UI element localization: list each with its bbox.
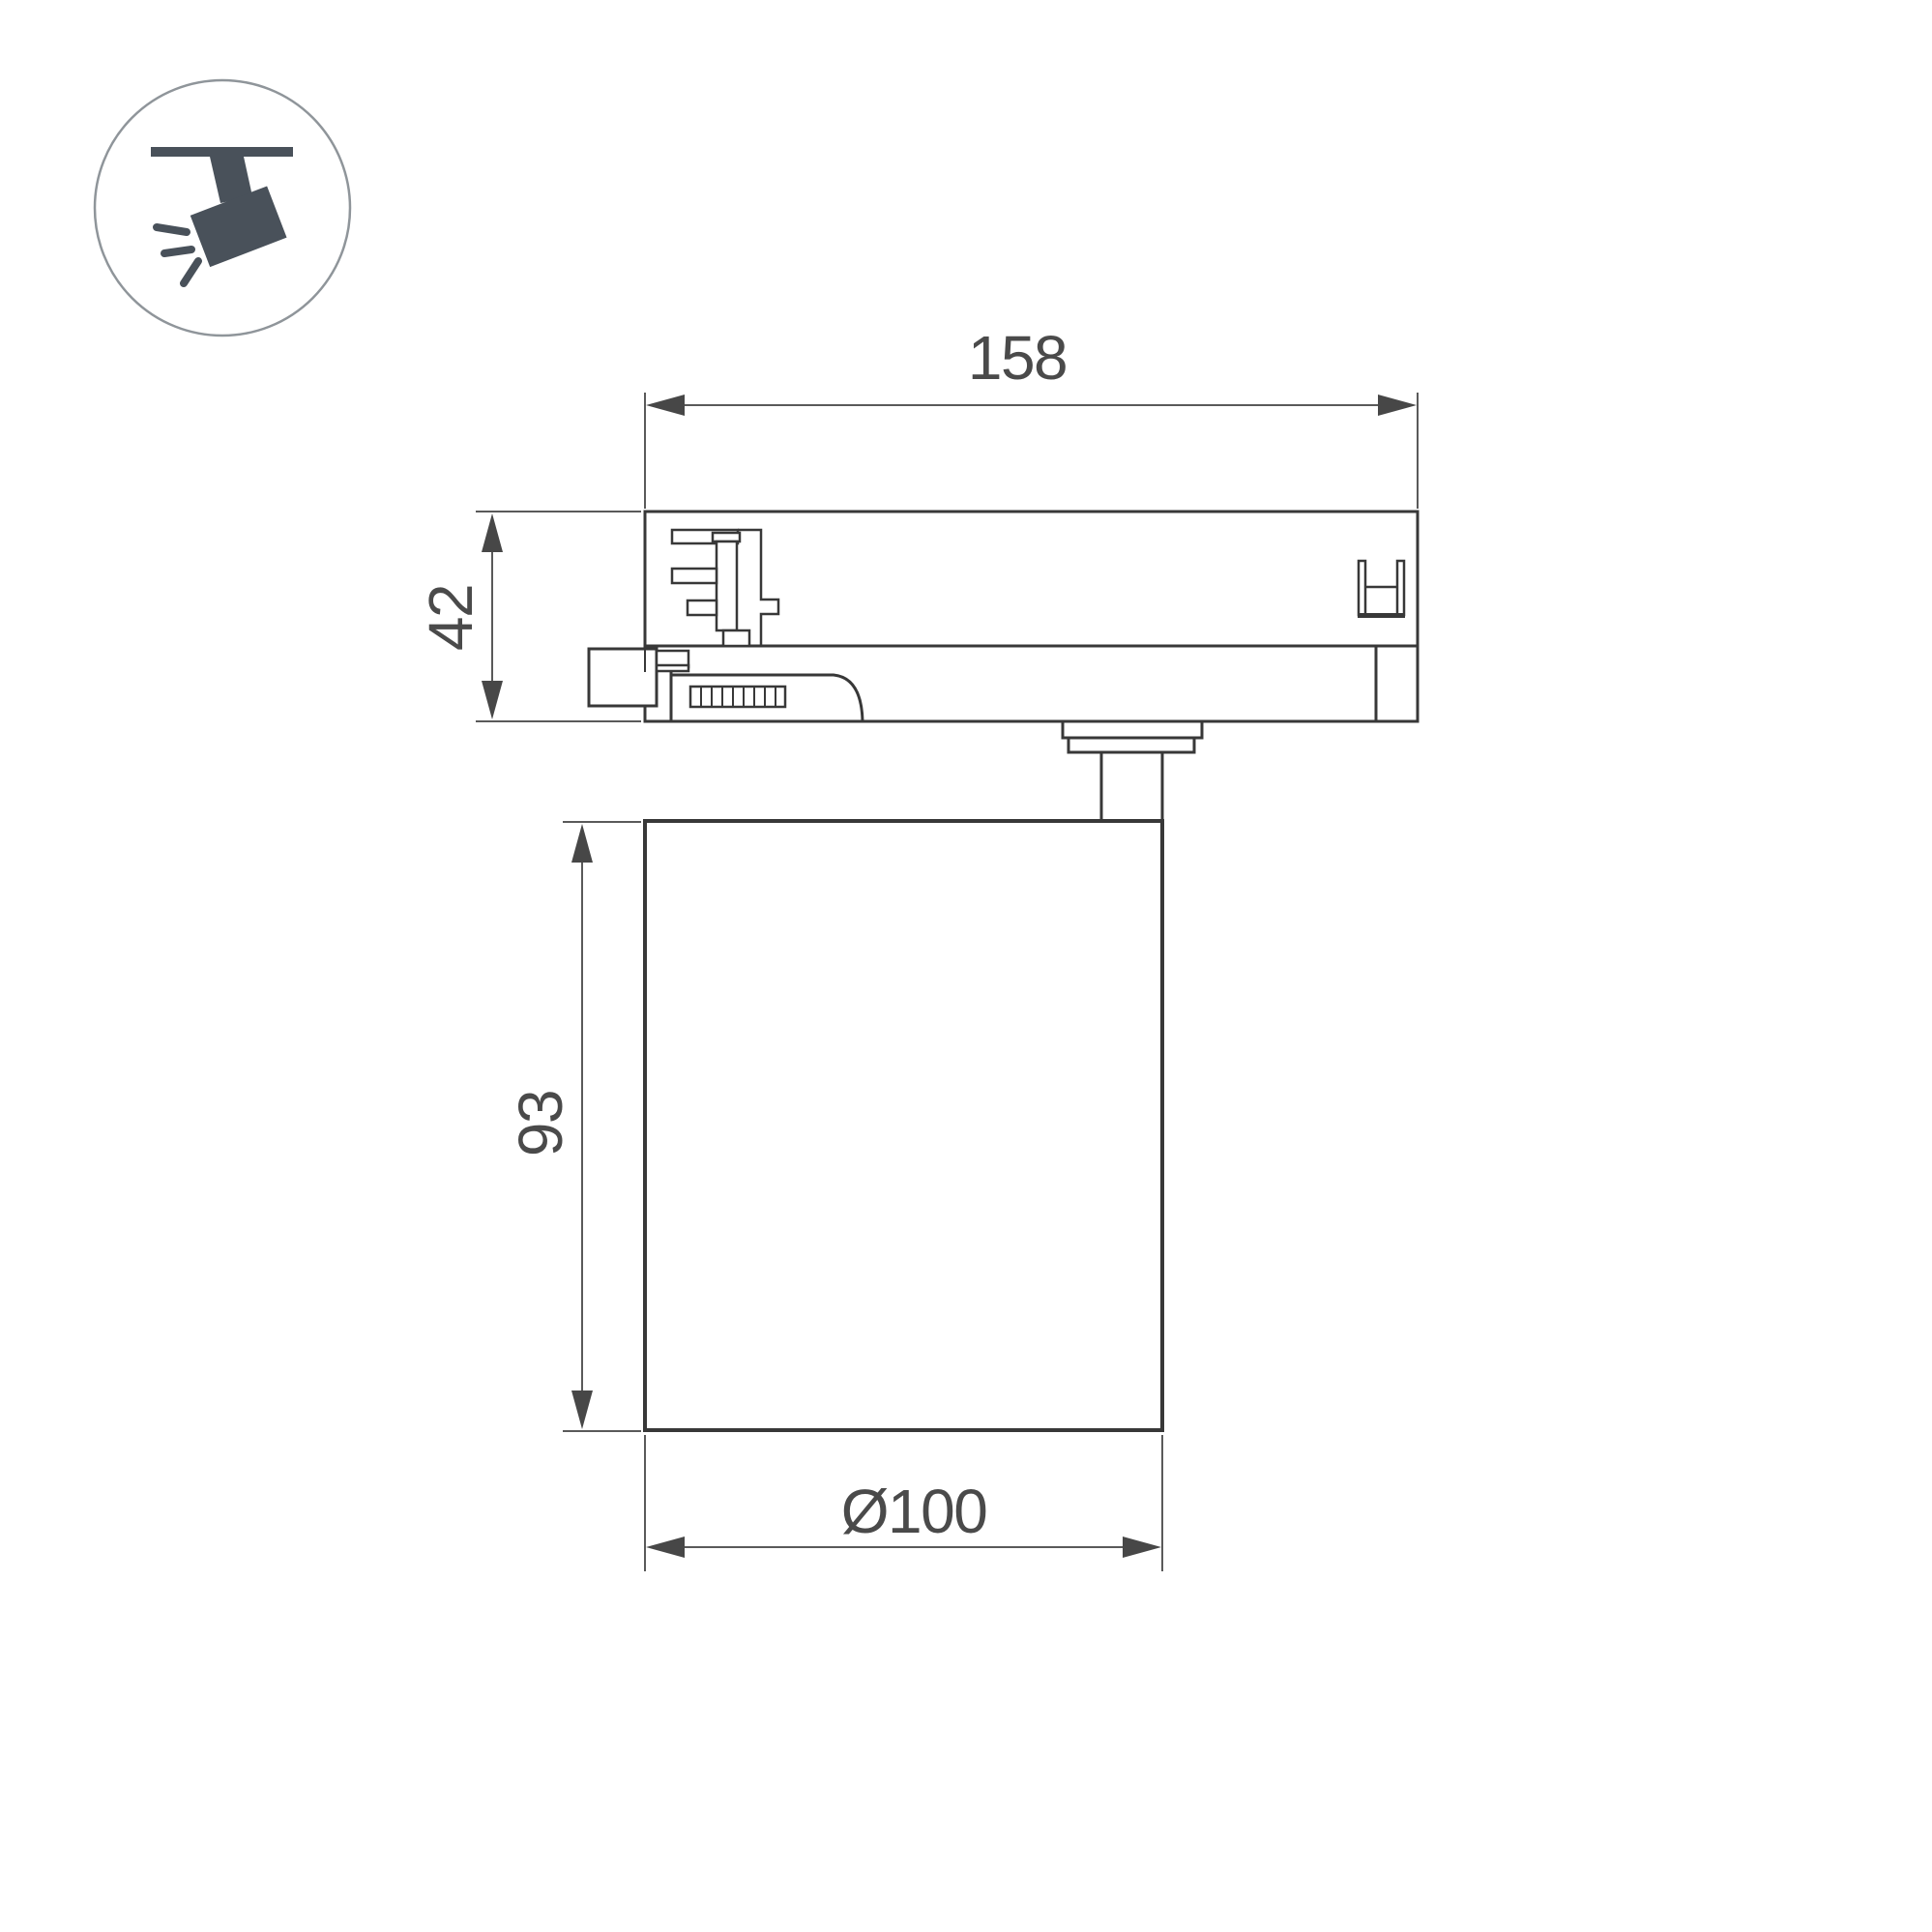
- dim-93-arrow-down: [571, 1390, 593, 1429]
- dim-93-arrow-up: [571, 824, 593, 863]
- dim-42-arrow-up: [482, 513, 503, 552]
- dim-93-label: 93: [506, 1091, 575, 1156]
- contact-assembly: [672, 530, 778, 646]
- icon-lamp-head: [190, 186, 287, 267]
- cover-plate: [671, 670, 863, 721]
- dim-158-label: 158: [968, 323, 1067, 393]
- icon-light-rays: [157, 227, 198, 283]
- contact-body: [738, 530, 778, 646]
- lamp-assembly: [645, 721, 1202, 1430]
- dim-158-lines: [645, 393, 1418, 509]
- dim-42-label: 42: [416, 585, 485, 651]
- lamp-cylinder-body: [645, 821, 1162, 1430]
- drawing-canvas: 158 42 93 Ø100: [0, 0, 1932, 1932]
- icon-track-bar: [151, 147, 293, 157]
- contact-foot: [723, 630, 749, 646]
- dim-158-arrow-right: [1378, 395, 1417, 416]
- dim-158-arrow-left: [646, 395, 685, 416]
- contact-cap: [713, 533, 740, 542]
- dimension-body-diameter: Ø100: [645, 1435, 1162, 1571]
- contact-prong-3: [688, 600, 717, 615]
- clip-right-bar: [1397, 561, 1404, 615]
- flange-plate-upper: [1063, 721, 1202, 738]
- dimension-body-height: 93: [506, 822, 641, 1431]
- dim-42-arrow-down: [482, 681, 503, 719]
- clip-base: [1358, 613, 1405, 618]
- dimension-adapter-width: 158: [645, 323, 1418, 509]
- end-clip: [1358, 561, 1405, 618]
- dim-100-arrow-right: [1123, 1537, 1161, 1558]
- track-spotlight-icon: [95, 80, 350, 336]
- latch-box: [589, 649, 657, 706]
- flange-plate-lower: [1068, 738, 1194, 752]
- dim-100-arrow-left: [646, 1537, 685, 1558]
- mount-stem: [1101, 752, 1162, 821]
- terminal-grille: [690, 687, 785, 707]
- latch-assembly: [589, 649, 688, 706]
- contact-stem: [717, 542, 737, 630]
- contact-prong-2: [672, 569, 717, 583]
- dim-100-label: Ø100: [841, 1477, 987, 1546]
- technical-drawing: 158 42 93 Ø100: [0, 0, 1932, 1932]
- clip-left-bar: [1359, 561, 1365, 615]
